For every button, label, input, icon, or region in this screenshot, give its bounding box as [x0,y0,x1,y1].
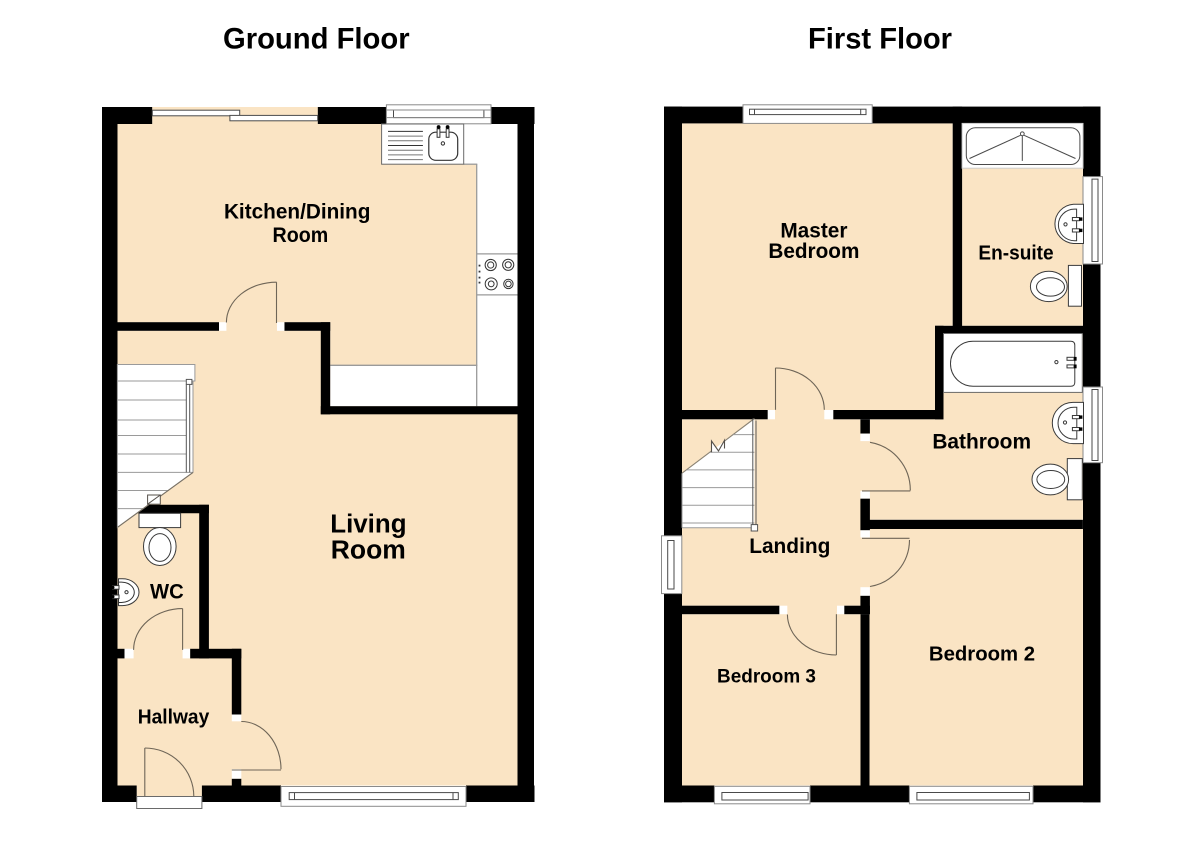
svg-text:Room: Room [273,223,329,247]
svg-text:En-suite: En-suite [978,243,1053,265]
svg-text:Bathroom: Bathroom [932,431,1031,454]
svg-text:Bedroom 2: Bedroom 2 [929,643,1035,665]
svg-text:Ground Floor: Ground Floor [223,23,410,55]
svg-text:Kitchen/Dining: Kitchen/Dining [224,200,371,224]
svg-text:Hallway: Hallway [138,706,210,728]
svg-text:Master: Master [780,220,847,243]
svg-text:Bedroom 3: Bedroom 3 [717,665,816,687]
svg-text:Bedroom: Bedroom [768,240,859,263]
svg-text:Room: Room [331,534,406,564]
svg-text:First Floor: First Floor [808,23,952,55]
svg-text:Landing: Landing [749,535,830,558]
svg-text:WC: WC [150,581,184,604]
